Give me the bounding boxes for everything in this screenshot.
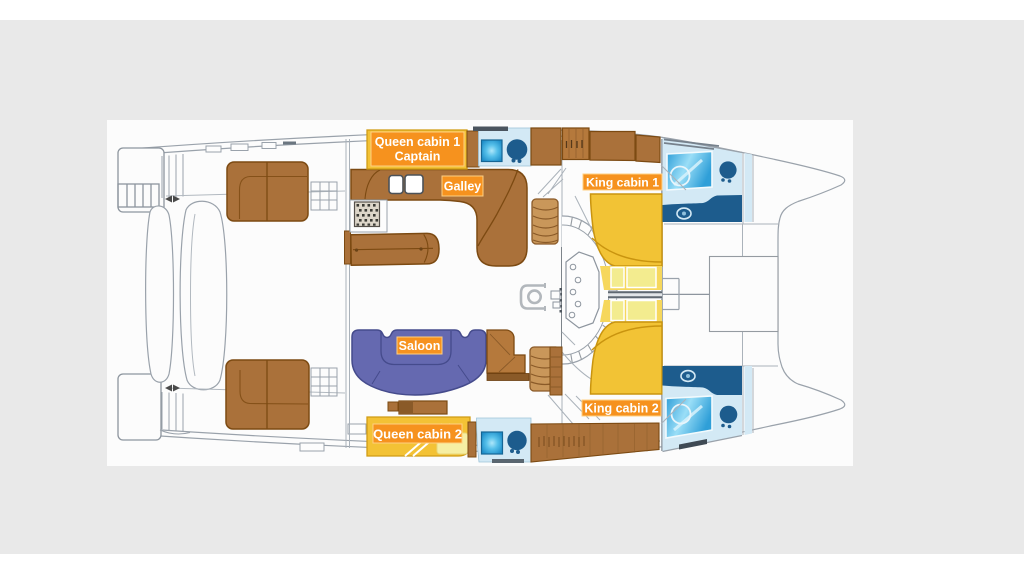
svg-text:King cabin 1: King cabin 1 (586, 176, 659, 190)
svg-text:Queen cabin 1: Queen cabin 1 (375, 135, 460, 149)
svg-text:Queen cabin 2: Queen cabin 2 (373, 427, 462, 442)
svg-text:Captain: Captain (395, 150, 441, 164)
svg-text:Saloon: Saloon (399, 339, 441, 353)
svg-text:Galley: Galley (444, 180, 482, 194)
svg-text:King cabin 2: King cabin 2 (584, 402, 658, 416)
